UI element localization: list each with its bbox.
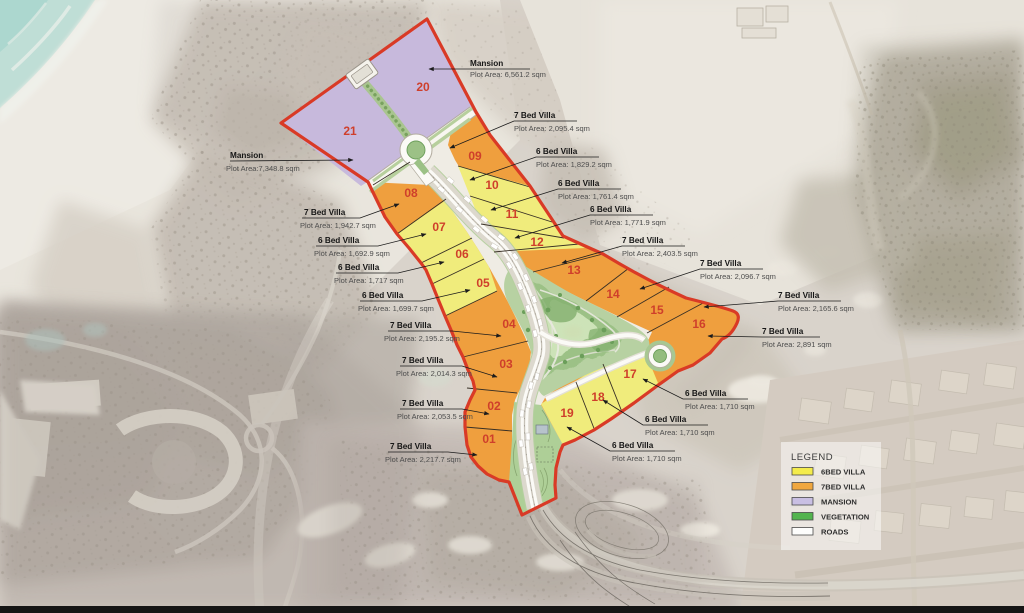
svg-text:06: 06 xyxy=(455,247,469,261)
svg-text:Plot Area: 2,217.7 sqm: Plot Area: 2,217.7 sqm xyxy=(385,455,461,464)
svg-text:Plot Area: 1,771.9 sqm: Plot Area: 1,771.9 sqm xyxy=(590,218,666,227)
svg-text:7 Bed Villa: 7 Bed Villa xyxy=(622,236,664,245)
svg-text:7 Bed Villa: 7 Bed Villa xyxy=(390,321,432,330)
svg-text:7 Bed Villa: 7 Bed Villa xyxy=(402,399,444,408)
svg-text:Plot Area: 1,692.9 sqm: Plot Area: 1,692.9 sqm xyxy=(314,249,390,258)
svg-text:Plot Area: 1,717 sqm: Plot Area: 1,717 sqm xyxy=(334,276,404,285)
svg-text:6 Bed Villa: 6 Bed Villa xyxy=(536,147,578,156)
svg-text:10: 10 xyxy=(485,178,499,192)
svg-text:6BED VILLA: 6BED VILLA xyxy=(821,468,866,477)
svg-text:Plot Area: 2,165.6 sqm: Plot Area: 2,165.6 sqm xyxy=(778,304,854,313)
svg-text:Plot Area: 1,710 sqm: Plot Area: 1,710 sqm xyxy=(612,454,682,463)
svg-text:Plot Area: 2,014.3 sqm: Plot Area: 2,014.3 sqm xyxy=(396,369,472,378)
svg-text:6 Bed Villa: 6 Bed Villa xyxy=(338,263,380,272)
svg-text:21: 21 xyxy=(343,124,357,138)
svg-text:01: 01 xyxy=(482,432,496,446)
svg-text:03: 03 xyxy=(499,357,513,371)
svg-text:Mansion: Mansion xyxy=(230,151,263,160)
svg-text:Plot Area: 6,561.2 sqm: Plot Area: 6,561.2 sqm xyxy=(470,70,546,79)
svg-text:VEGETATION: VEGETATION xyxy=(821,513,869,522)
svg-text:11: 11 xyxy=(506,207,519,221)
svg-text:Plot Area: 2,053.5 sqm: Plot Area: 2,053.5 sqm xyxy=(397,412,473,421)
svg-text:17: 17 xyxy=(623,367,637,381)
svg-text:Plot Area: 1,761.4 sqm: Plot Area: 1,761.4 sqm xyxy=(558,192,634,201)
svg-text:Plot Area: 2,891 sqm: Plot Area: 2,891 sqm xyxy=(762,340,832,349)
svg-text:12: 12 xyxy=(530,235,544,249)
svg-text:Plot Area: 1,942.7 sqm: Plot Area: 1,942.7 sqm xyxy=(300,221,376,230)
svg-text:7 Bed Villa: 7 Bed Villa xyxy=(762,327,804,336)
svg-text:MANSION: MANSION xyxy=(821,498,857,507)
svg-text:6 Bed Villa: 6 Bed Villa xyxy=(590,205,632,214)
svg-text:Plot Area:7,348.8 sqm: Plot Area:7,348.8 sqm xyxy=(226,164,300,173)
svg-text:Plot Area: 2,096.7 sqm: Plot Area: 2,096.7 sqm xyxy=(700,272,776,281)
svg-text:6 Bed Villa: 6 Bed Villa xyxy=(685,389,727,398)
svg-text:7 Bed Villa: 7 Bed Villa xyxy=(390,442,432,451)
svg-text:13: 13 xyxy=(567,263,581,277)
svg-text:7 Bed Villa: 7 Bed Villa xyxy=(514,111,556,120)
svg-text:08: 08 xyxy=(404,186,418,200)
svg-text:Mansion: Mansion xyxy=(470,59,503,68)
svg-text:02: 02 xyxy=(487,399,501,413)
svg-text:20: 20 xyxy=(416,80,430,94)
svg-text:6 Bed Villa: 6 Bed Villa xyxy=(558,179,600,188)
svg-text:15: 15 xyxy=(650,303,664,317)
svg-text:09: 09 xyxy=(468,149,482,163)
svg-text:Plot Area: 2,195.2 sqm: Plot Area: 2,195.2 sqm xyxy=(384,334,460,343)
svg-text:05: 05 xyxy=(476,276,490,290)
svg-text:ROADS: ROADS xyxy=(821,528,848,537)
svg-text:7 Bed Villa: 7 Bed Villa xyxy=(778,291,820,300)
svg-text:Plot Area: 2,095.4 sqm: Plot Area: 2,095.4 sqm xyxy=(514,124,590,133)
svg-text:Plot Area: 1,829.2 sqm: Plot Area: 1,829.2 sqm xyxy=(536,160,612,169)
svg-text:7 Bed Villa: 7 Bed Villa xyxy=(304,208,346,217)
svg-text:LEGEND: LEGEND xyxy=(791,452,833,463)
svg-text:Plot Area: 2,403.5 sqm: Plot Area: 2,403.5 sqm xyxy=(622,249,698,258)
svg-text:Plot Area: 1,699.7 sqm: Plot Area: 1,699.7 sqm xyxy=(358,304,434,313)
svg-text:6 Bed Villa: 6 Bed Villa xyxy=(362,291,404,300)
svg-text:19: 19 xyxy=(560,406,574,420)
svg-text:14: 14 xyxy=(606,287,620,301)
svg-text:07: 07 xyxy=(432,220,446,234)
svg-text:7 Bed Villa: 7 Bed Villa xyxy=(402,356,444,365)
svg-text:Plot Area: 1,710 sqm: Plot Area: 1,710 sqm xyxy=(685,402,755,411)
svg-text:Plot Area: 1,710 sqm: Plot Area: 1,710 sqm xyxy=(645,428,715,437)
svg-text:7 Bed Villa: 7 Bed Villa xyxy=(700,259,742,268)
svg-text:6 Bed Villa: 6 Bed Villa xyxy=(612,441,654,450)
svg-text:18: 18 xyxy=(591,390,605,404)
svg-text:6 Bed Villa: 6 Bed Villa xyxy=(645,415,687,424)
svg-text:16: 16 xyxy=(692,317,706,331)
svg-text:6 Bed Villa: 6 Bed Villa xyxy=(318,236,360,245)
svg-text:7BED VILLA: 7BED VILLA xyxy=(821,483,866,492)
svg-text:04: 04 xyxy=(502,317,516,331)
